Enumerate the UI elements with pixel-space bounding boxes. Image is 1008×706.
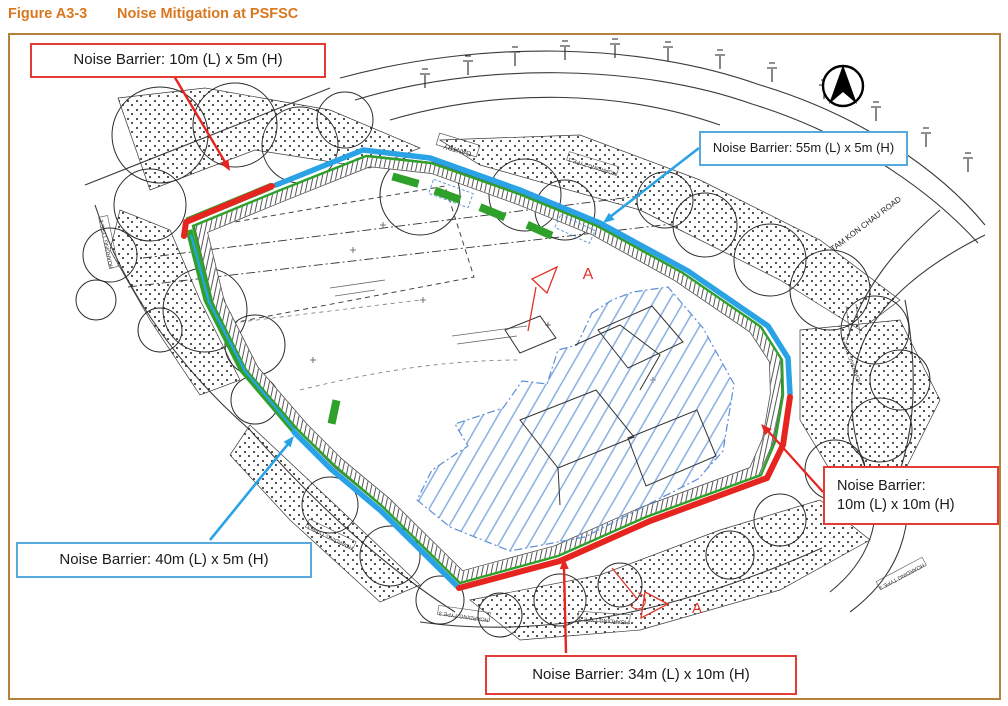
site-plan-drawing: GANTRY HOARDING TYPE 1 HOARDING TYPE 3 H… <box>0 0 1008 706</box>
callout-text: Noise Barrier: 34m (L) x 10m (H) <box>532 666 750 685</box>
callout-noise-barrier-40x5: Noise Barrier: 40m (L) x 5m (H) <box>16 542 312 578</box>
callout-text-line2: 10m (L) x 10m (H) <box>837 496 955 514</box>
callout-noise-barrier-55x5: Noise Barrier: 55m (L) x 5m (H) <box>699 131 908 166</box>
callout-noise-barrier-10x10: Noise Barrier: 10m (L) x 10m (H) <box>823 466 999 525</box>
building-footprint <box>417 287 734 551</box>
section-marker-A-center: A <box>583 266 594 283</box>
figure-page: Figure A3-3 Noise Mitigation at PSFSC <box>0 0 1008 706</box>
callout-noise-barrier-34x10: Noise Barrier: 34m (L) x 10m (H) <box>485 655 797 695</box>
callout-noise-barrier-10x5: Noise Barrier: 10m (L) x 5m (H) <box>30 43 326 78</box>
callout-text: Noise Barrier: 40m (L) x 5m (H) <box>59 551 268 570</box>
road-label: TAM KON CHAU ROAD <box>829 194 903 253</box>
callout-text: Noise Barrier: 55m (L) x 5m (H) <box>713 140 894 156</box>
callout-text: Noise Barrier: 10m (L) x 5m (H) <box>73 51 282 70</box>
callout-text-line1: Noise Barrier: <box>837 477 926 495</box>
section-marker-A-bottom: A <box>692 600 702 617</box>
north-arrow-icon <box>823 65 863 106</box>
